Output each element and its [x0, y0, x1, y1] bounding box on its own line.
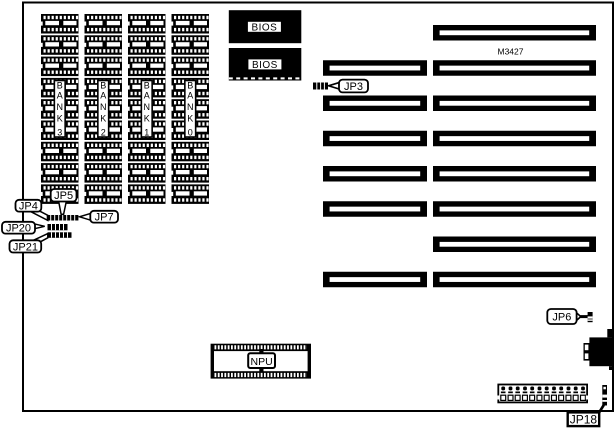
svg-text:A: A: [57, 91, 63, 101]
svg-text:K: K: [144, 113, 150, 123]
svg-text:JP20: JP20: [6, 223, 31, 235]
svg-text:NPU: NPU: [251, 356, 273, 368]
svg-text:JP3: JP3: [344, 81, 363, 93]
svg-text:0: 0: [188, 127, 193, 137]
svg-text:JP6: JP6: [552, 312, 571, 324]
svg-text:K: K: [100, 113, 106, 123]
svg-text:2: 2: [101, 127, 106, 137]
svg-text:N: N: [57, 102, 64, 112]
svg-text:BIOS: BIOS: [252, 60, 278, 71]
svg-text:N: N: [144, 102, 151, 112]
svg-text:B: B: [187, 80, 193, 90]
svg-text:K: K: [57, 113, 63, 123]
svg-text:A: A: [100, 91, 106, 101]
svg-text:B: B: [144, 80, 150, 90]
svg-text:N: N: [100, 102, 107, 112]
svg-text:JP21: JP21: [13, 241, 38, 253]
svg-text:K: K: [187, 113, 193, 123]
svg-text:B: B: [57, 80, 63, 90]
svg-text:JP4: JP4: [19, 201, 38, 213]
svg-text:A: A: [144, 91, 150, 101]
svg-text:BIOS: BIOS: [251, 22, 277, 33]
svg-text:N: N: [187, 102, 194, 112]
svg-text:3: 3: [57, 127, 62, 137]
svg-text:B: B: [100, 80, 106, 90]
svg-text:A: A: [187, 91, 193, 101]
svg-text:JP18: JP18: [570, 412, 598, 426]
svg-text:M3427: M3427: [498, 47, 524, 57]
svg-text:JP5: JP5: [54, 190, 73, 202]
svg-text:JP7: JP7: [95, 212, 114, 224]
svg-text:1: 1: [144, 127, 149, 137]
